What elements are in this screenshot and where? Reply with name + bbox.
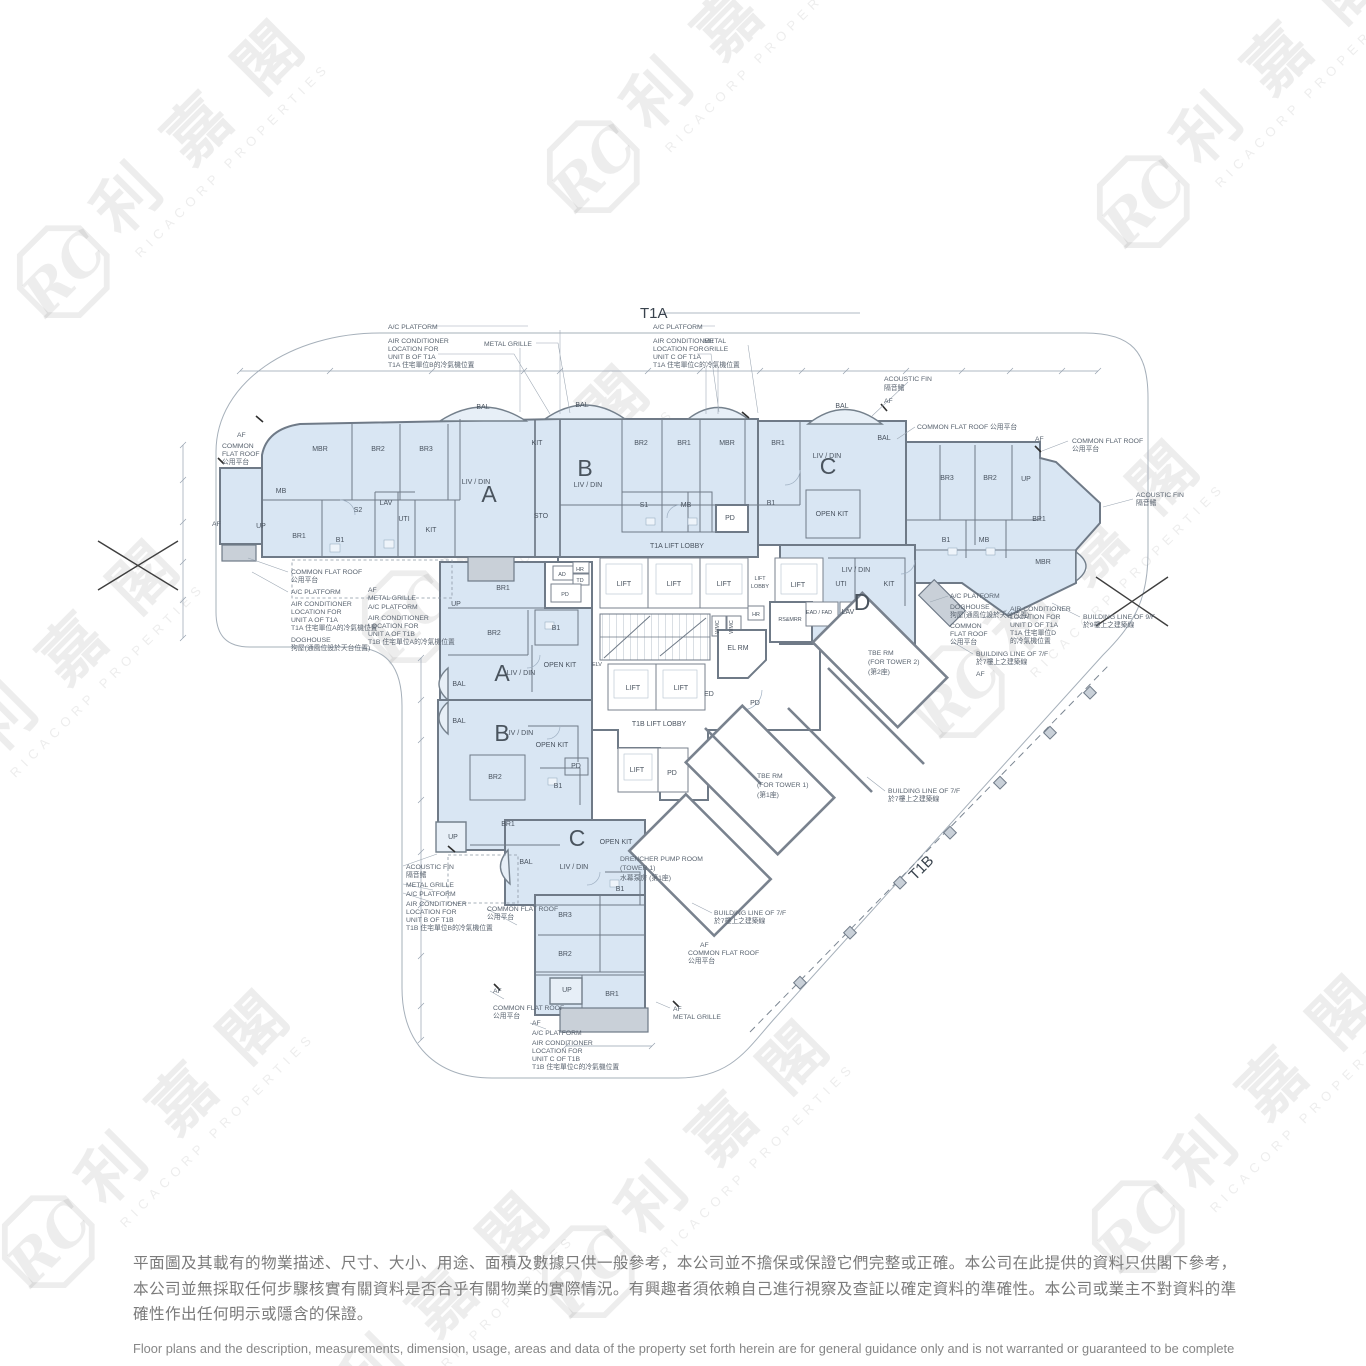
plan-label: OPEN KIT [600,839,633,846]
plan-label: EL RM [727,645,748,652]
plan-label: (第1座) [757,790,779,799]
plan-label: BR2 [487,630,501,637]
plan-label: UP [451,601,461,608]
plan-label: UNIT C OF T1B [532,1056,581,1063]
plan-label: T1A 住宅單位C的冷氣機位置 [653,360,740,369]
t1b-lift-lobby-label: T1B LIFT LOBBY [632,721,687,728]
unit-b-t1a: B [577,455,592,481]
plan-label: LOCATION FOR [406,909,457,916]
plan-label: MBR [312,446,328,453]
plan-label: UNIT B OF T1A [388,354,436,361]
plan-label: METAL [704,338,726,345]
plan-label: 隔音鰭 [884,383,905,392]
plan-label: BAL [452,681,465,688]
plan-label: AF [1035,436,1044,443]
disclaimer-chinese: 平面圖及其載有的物業描述、尺寸、大小、用途、面積及數據只供一般參考，本公司並不擔… [133,1251,1243,1328]
plan-label: 於7樓上之建築線 [976,657,1028,666]
plan-label: LOCATION FOR [532,1048,583,1055]
ac-platform [919,580,966,627]
plan-label: LIFT [667,581,682,588]
plan-label: T1A 住宅單位A的冷氣機位置 [291,623,378,632]
disclaimer-english: Floor plans and the description, measure… [133,1337,1243,1366]
plan-label: LIV / DIN [462,479,490,486]
plan-label: EAD / FAD [806,610,832,616]
plan-label: 狗屋(通風位設於天台位置) [291,643,370,652]
plan-label: MBR [1035,559,1051,566]
plan-label: 水幕泵房 (第1座) [620,873,671,882]
plan-label: BAL [519,859,532,866]
plan-label: BAL [835,403,848,410]
plan-label: COMMON FLAT ROOF 公用平台 [917,422,1017,431]
plan-label: LIV / DIN [507,670,535,677]
plan-label: AF [493,988,502,995]
plan-label: MB [276,488,287,495]
plan-label: BUILDING LINE OF 7/F [714,910,786,917]
plan-label: METAL GRILLE [673,1014,721,1021]
plan-label: B1 [336,537,345,544]
floor-plan-page: RC 利嘉閣 RICACORP PROPERTIES RC 利嘉閣RICACOR… [0,0,1366,1366]
plan-label: 公用平台 [950,637,977,646]
plan-label: GRILLE [704,346,729,353]
plan-label: MBR [719,440,735,447]
plan-label: BUILDING LINE OF 7/F [888,788,960,795]
plan-label: WMC [715,620,721,634]
plan-label: WMC [729,620,735,634]
plan-label: TBE RM [757,773,783,780]
plan-label: BR2 [558,951,572,958]
plan-label: T1B 住宅單位B的冷氣機位置 [406,923,493,932]
plan-label: AF [673,1006,682,1013]
plan-label: 公用平台 [688,956,715,965]
plan-label: BR1 [1032,516,1046,523]
plan-label: RS&MRR [778,617,801,623]
plan-label: TBE RM [868,650,894,657]
plan-label: HR [752,612,760,618]
plan-label: AF [884,398,893,405]
plan-label: UNIT B OF T1B [406,917,454,924]
plan-label: COMMON FLAT ROOF [493,1005,564,1012]
tower-label-t1b: T1B [906,852,937,883]
plan-label: PD [571,763,581,770]
plan-label: UNIT C OF T1A [653,354,702,361]
plan-label: OPEN KIT [536,742,569,749]
plan-label: B1 [767,500,776,507]
plan-label: AIR CONDITIONER [406,901,467,908]
plan-label: A/C PLATFORM [368,604,418,611]
plan-label: B1 [942,537,951,544]
plan-label: AF [532,1020,541,1027]
plan-label: AIR CONDITIONER [1010,606,1071,613]
plan-label: LOCATION FOR [291,609,342,616]
plan-label: 於7樓上之建築線 [888,794,940,803]
plan-label: UP [562,987,572,994]
plan-label: BR2 [371,446,385,453]
plan-label: FLAT ROOF [222,451,260,458]
plan-label: LOBBY [751,584,769,590]
plan-label: BR2 [983,475,997,482]
plan-label: B1 [552,625,561,632]
plan-label: BR1 [605,991,619,998]
plan-label: T1B 住宅單位C的冷氣機位置 [532,1062,619,1071]
plan-label: TD [576,578,583,584]
plan-label: UP [256,523,266,530]
plan-label: BAL [476,404,489,411]
plan-label: COMMON [222,443,254,450]
plan-label: BAL [575,402,588,409]
plan-label: METAL GRILLE [368,595,416,602]
plan-label: PD [667,770,677,777]
plan-label: UP [448,834,458,841]
t1a-lift-lobby-label: T1A LIFT LOBBY [650,543,704,550]
plan-label: T1A 住宅單位D [1010,628,1056,637]
plan-label: B1 [616,886,625,893]
plan-label: AF [368,587,377,594]
plan-label: BAL [877,435,890,442]
plan-label: FLAT ROOF [950,631,988,638]
plan-label: COMMON FLAT ROOF [487,906,558,913]
plan-label: AF [212,521,221,528]
plan-label: T1B 住宅單位A的冷氣機位置 [368,637,455,646]
plan-label: LAV [842,609,855,616]
plan-label: S2 [354,507,363,514]
plan-label: LIFT [630,767,645,774]
plan-label: A/C PLATFORM [653,324,703,331]
plan-label: UNIT D OF T1A [1010,622,1059,629]
plan-label: AF [237,432,246,439]
plan-label: KIT [532,440,544,447]
plan-label: A/C PLATFORM [388,324,438,331]
unit-d-t1a: D [854,589,871,615]
tower-label-t1a: T1A [640,305,668,322]
plan-label: ELV [592,662,602,668]
plan-label: AD [558,572,566,578]
plan-label: A/C PLATFORM [532,1030,582,1037]
plan-label: LIFT [674,685,689,692]
plan-label: HR [576,567,584,573]
plan-label: BR3 [558,912,572,919]
plan-label: BR3 [419,446,433,453]
plan-label: LIV / DIN [574,482,602,489]
plan-label: PD [561,592,569,598]
plan-label: T1A 住宅單位B的冷氣機位置 [388,360,475,369]
plan-label: MB [681,502,692,509]
plan-label: A/C PLATFORM [406,891,456,898]
plan-label: 公用平台 [487,912,514,921]
plan-label: COMMON FLAT ROOF [688,950,759,957]
plan-label: LAV [380,500,393,507]
plan-label: BUILDING LINE OF 7/F [976,651,1048,658]
plan-label: PD [725,515,735,522]
plan-label: LIFT [717,581,732,588]
plan-label: LIV / DIN [842,567,870,574]
plan-label: ACOUSTIC FIN [884,376,932,383]
plan-label: ACOUSTIC FIN [1136,492,1184,499]
plan-label: KIT [884,581,896,588]
plan-label: BR1 [292,533,306,540]
ac-platform [560,1008,648,1032]
plan-label: OPEN KIT [544,662,577,669]
plan-label: 公用平台 [291,575,318,584]
plan-label: COMMON FLAT ROOF [291,569,362,576]
plan-label: 公用平台 [493,1011,520,1020]
plan-label: LOCATION FOR [388,346,439,353]
plan-label: BR1 [771,440,785,447]
plan-label: AIR CONDITIONER [291,601,352,608]
ac-platform [222,545,256,561]
plan-label: (TOWER 1) [620,865,655,872]
plan-label: (第2座) [868,667,890,676]
plan-label: DRENCHER PUMP ROOM [620,856,703,863]
plan-label: LOCATION FOR [653,346,704,353]
plan-label: UTI [835,581,846,588]
plan-label: BR2 [634,440,648,447]
ac-platform [468,557,514,581]
plan-label: (FOR TOWER 1) [757,782,808,789]
plan-label: AF [976,671,985,678]
plan-label: LOCATION FOR [368,623,419,630]
plan-label: 隔音鰭 [406,870,427,879]
plan-label: BR2 [488,774,502,781]
plan-label: LIFT [791,582,806,589]
mb-protrusion [220,468,262,544]
plan-label: OPEN KIT [816,511,849,518]
plan-label: 於9樓上之建築線 [1083,620,1135,629]
plan-label: UTI [398,516,409,523]
plan-label: METAL GRILLE [484,341,532,348]
plan-label: BR1 [496,585,510,592]
floor-plan-drawing: T1AT1BABCDABCMBRBR2BR3BALBALKITLIV / DIN… [0,0,1366,1366]
plan-label: KIT [426,527,438,534]
unit-c-t1b: C [569,825,586,851]
plan-label: METAL GRILLE [406,882,454,889]
plan-label: 隔音鰭 [1136,498,1157,507]
plan-label: ED [704,691,714,698]
disclaimer-block: 平面圖及其載有的物業描述、尺寸、大小、用途、面積及數據只供一般參考，本公司並不擔… [133,1251,1243,1366]
plan-label: LIFT [754,576,766,582]
plan-label: DOGHOUSE [291,637,331,644]
plan-label: UNIT A OF T1B [368,631,415,638]
plan-label: B1 [554,783,563,790]
plan-label: LIFT [617,581,632,588]
plan-label: BR3 [940,475,954,482]
plan-label: A/C PLATFORM [291,589,341,596]
plan-label: COMMON [950,623,982,630]
plan-label: LIV / DIN [813,453,841,460]
plan-label: 公用平台 [222,457,249,466]
plan-label: AIR CONDITIONER [532,1040,593,1047]
plan-label: BR1 [677,440,691,447]
staircase [600,614,710,660]
plan-label: 公用平台 [1072,444,1099,453]
plan-label: 於7樓上之建築線 [714,916,766,925]
x-mark-left [98,541,178,590]
plan-label: COMMON FLAT ROOF [1072,438,1143,445]
plan-label: BAL [452,718,465,725]
plan-label: MB [979,537,990,544]
plan-label: LIV / DIN [505,730,533,737]
plan-label: AIR CONDITIONER [368,615,429,622]
plan-label: AIR CONDITIONER [388,338,449,345]
plan-label: (FOR TOWER 2) [868,659,919,666]
plan-label: AF [700,942,709,949]
plan-label: LOCATION FOR [1010,614,1061,621]
plan-label: ACOUSTIC FIN [406,864,454,871]
plan-label: DOGHOUSE [950,604,990,611]
plan-label: A/C PLATFORM [950,593,1000,600]
plan-label: S1 [640,502,649,509]
plan-label: BR1 [501,821,515,828]
plan-label: LIV / DIN [560,864,588,871]
plan-label: UP [1021,476,1031,483]
plan-label: PD [750,700,760,707]
plan-label: BUILDING LINE OF 9/F [1083,614,1155,621]
plan-label: STO [534,513,549,520]
plan-label: UNIT A OF T1A [291,617,338,624]
plan-label: 的冷氣機位置 [1010,636,1051,645]
plan-label: LIFT [626,685,641,692]
